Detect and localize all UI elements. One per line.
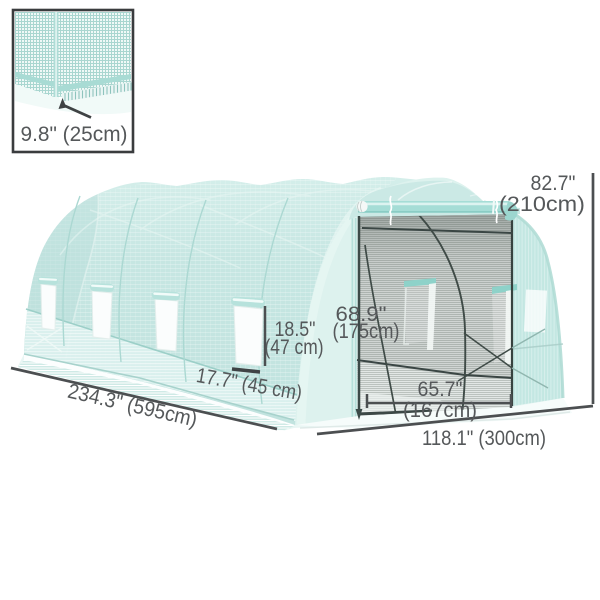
- svg-text:(47 cm): (47 cm): [265, 336, 324, 359]
- svg-text:(175cm): (175cm): [333, 320, 400, 343]
- svg-text:82.7": 82.7": [531, 172, 576, 195]
- svg-text:(167cm): (167cm): [403, 399, 477, 422]
- svg-text:65.7": 65.7": [418, 378, 463, 401]
- svg-text:9.8" (25cm): 9.8" (25cm): [21, 123, 128, 146]
- svg-text:(210cm): (210cm): [499, 193, 585, 216]
- svg-text:118.1" (300cm): 118.1" (300cm): [422, 427, 546, 450]
